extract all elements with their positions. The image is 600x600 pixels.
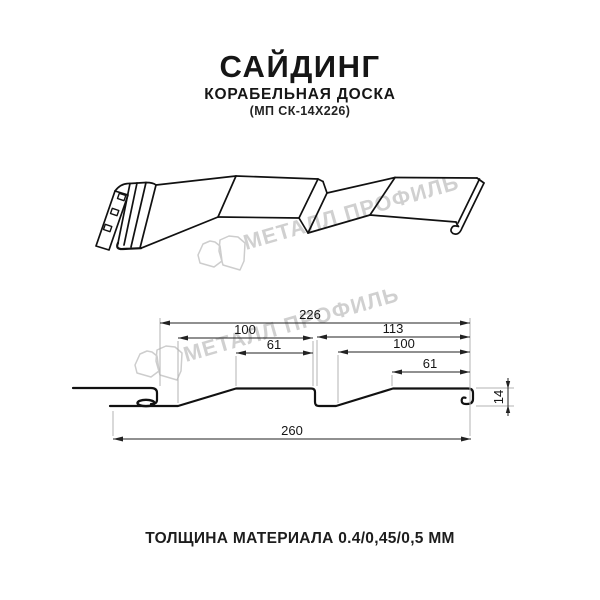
- dim-label-226: 226: [299, 307, 321, 322]
- dim-label-left-61: 61: [267, 337, 281, 352]
- dim-label-14: 14: [491, 390, 506, 404]
- metall-profil-logo-icon: [198, 236, 245, 270]
- section-left-tail: [73, 388, 157, 404]
- watermark-brand-text: МЕТАЛЛ ПРОФИЛЬ: [241, 170, 462, 255]
- section-profile-outline: [110, 389, 473, 407]
- nail-hole: [111, 208, 119, 215]
- nail-hole: [118, 193, 126, 200]
- extension-lines: [113, 318, 514, 436]
- nail-hole: [104, 224, 112, 231]
- cross-section-view: [73, 388, 473, 406]
- dim-label-right-61: 61: [423, 356, 437, 371]
- watermark-brand-text: МЕТАЛЛ ПРОФИЛЬ: [181, 282, 402, 367]
- dim-label-right-100: 100: [393, 336, 415, 351]
- slope1-back-edge: [156, 176, 236, 185]
- dim-label-260: 260: [281, 423, 303, 438]
- slope1-front-edge: [141, 217, 218, 248]
- panel1: [218, 176, 318, 218]
- siding-profile-diagram: МЕТАЛЛ ПРОФИЛЬ МЕТАЛЛ ПРОФИЛЬ: [0, 0, 600, 600]
- material-thickness-note: ТОЛЩИНА МАТЕРИАЛА 0.4/0,45/0,5 ММ: [0, 530, 600, 548]
- metall-profil-logo-icon: [135, 346, 182, 380]
- dim-label-113: 113: [383, 321, 404, 336]
- watermark-lower: МЕТАЛЛ ПРОФИЛЬ: [135, 282, 402, 380]
- dim-label-left-100: 100: [234, 322, 256, 337]
